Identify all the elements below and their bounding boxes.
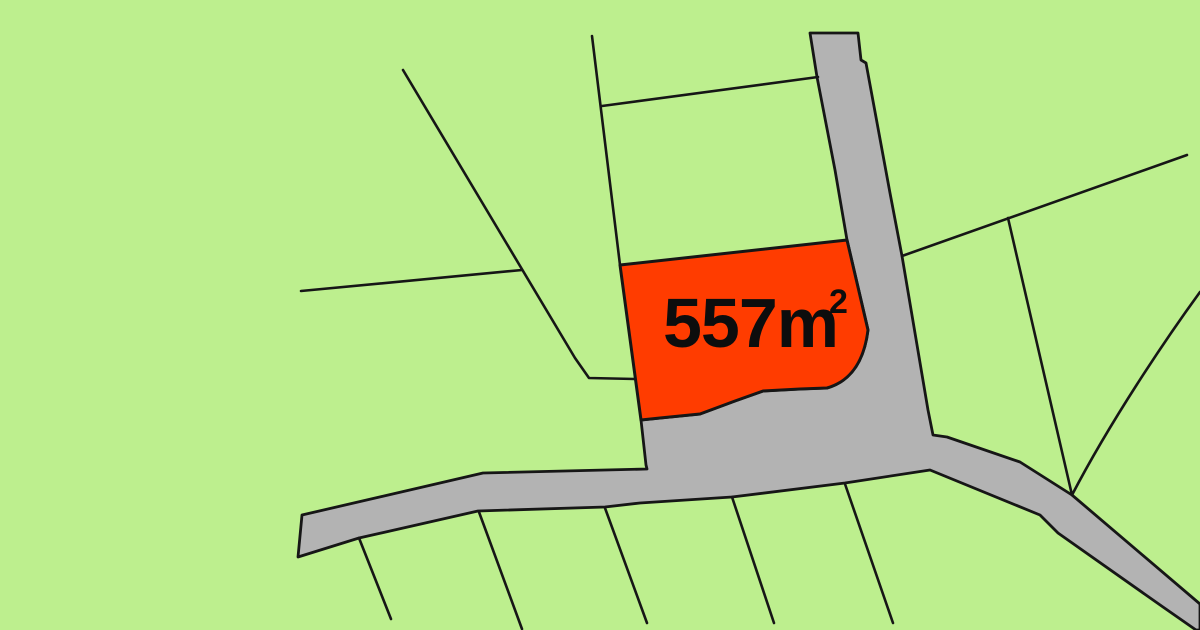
area-label: 557m 2 — [663, 283, 847, 362]
area-value: 557m — [663, 284, 838, 362]
area-unit-superscript: 2 — [829, 283, 847, 321]
parcel-map: 557m 2 — [0, 0, 1200, 630]
